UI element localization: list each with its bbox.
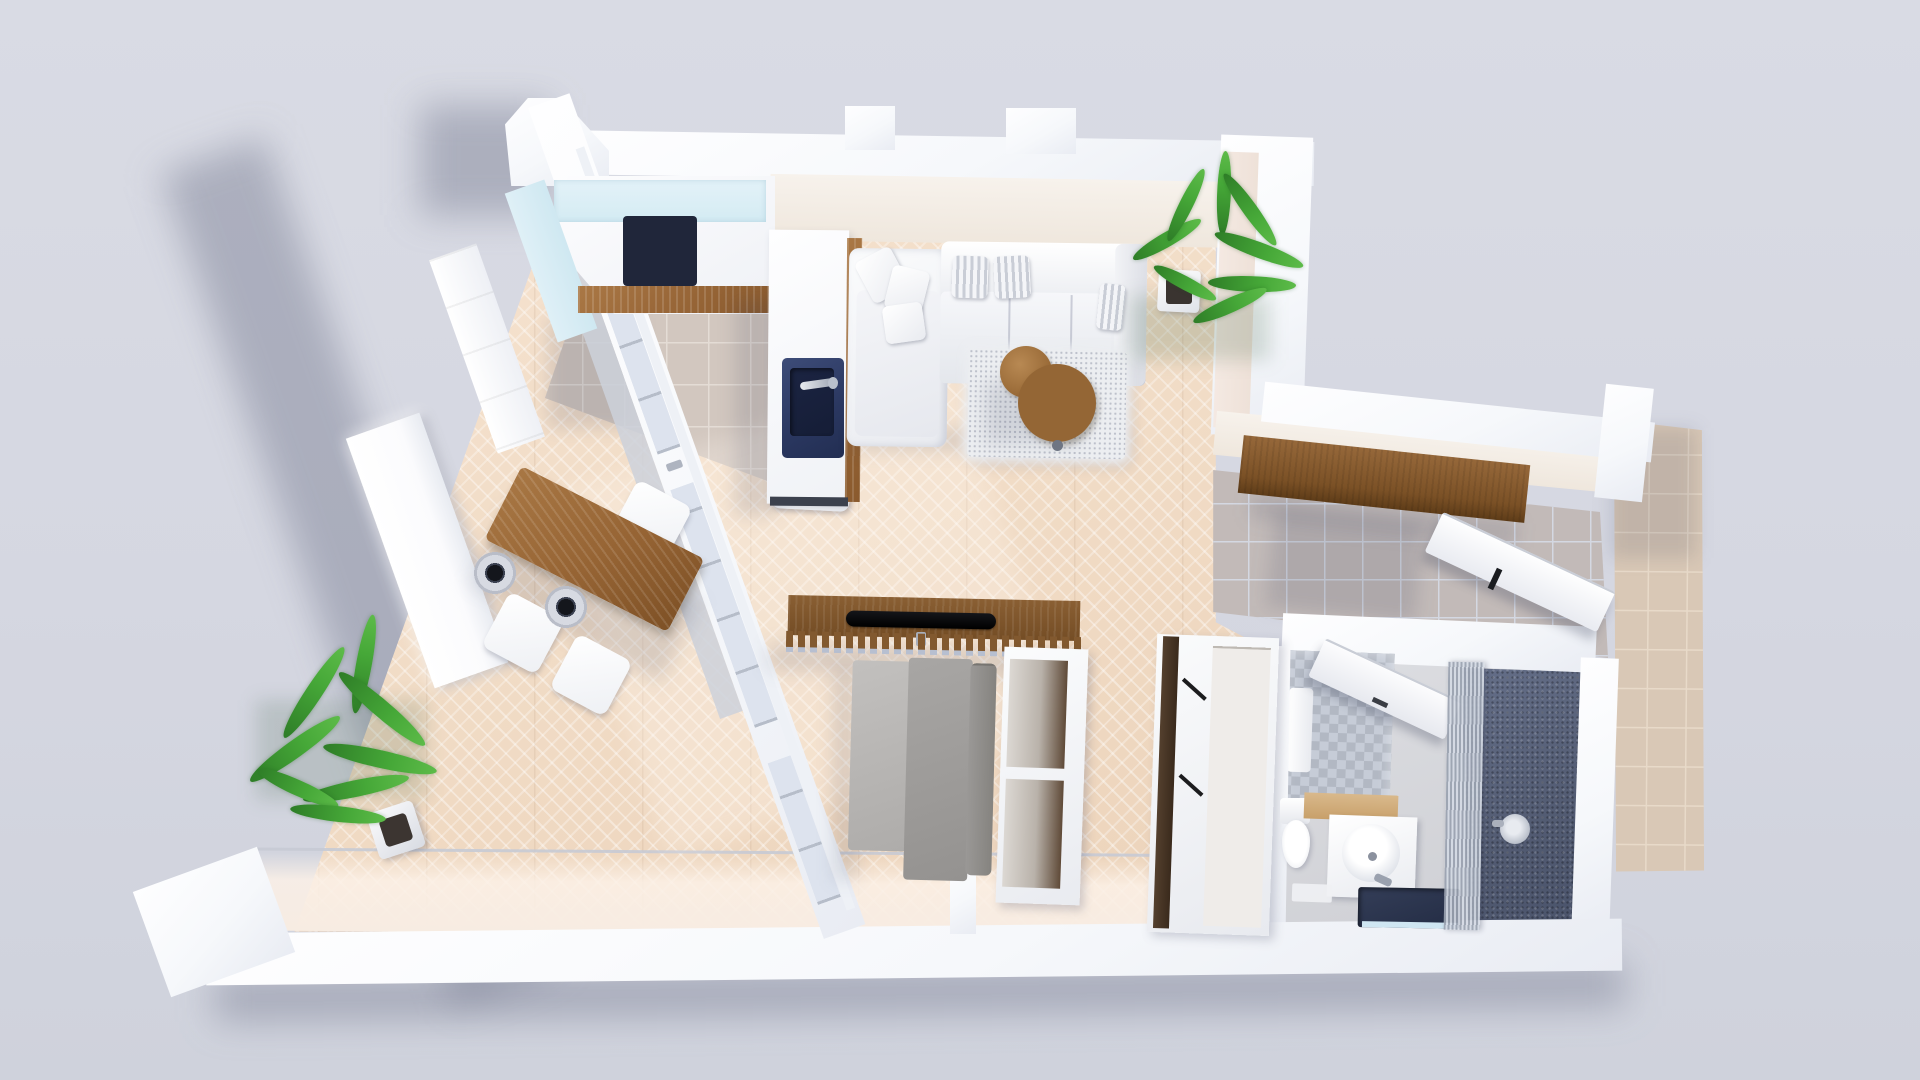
coffee-table-large — [1018, 364, 1096, 442]
wardrobe-handle-1 — [1182, 678, 1207, 701]
coffee-table-leg — [1052, 440, 1063, 451]
sofabed-mattress — [848, 660, 911, 851]
pendant-lamp-1 — [472, 550, 518, 596]
sofa-pillow-striped-1 — [951, 255, 988, 298]
shower-glass — [1444, 662, 1485, 931]
bookcase-compartment-1 — [1006, 659, 1068, 769]
wardrobe — [1147, 634, 1279, 936]
sofa-pillow-striped-2 — [993, 255, 1031, 299]
window-handle — [666, 459, 684, 472]
top-wall-bump-right — [1006, 108, 1076, 154]
top-wall-bump-left — [845, 106, 895, 150]
bath-mat — [1292, 883, 1333, 902]
bookcase-compartment-2 — [1002, 779, 1064, 889]
wardrobe-handle-2 — [1178, 774, 1203, 797]
sink-faucet-base — [828, 377, 838, 389]
sofa-pillow-3 — [882, 301, 927, 344]
cooktop — [623, 216, 697, 286]
wardrobe-open-door-edge — [1153, 636, 1179, 928]
potted-palm-bottom-left — [230, 620, 430, 840]
sofabed-body — [903, 658, 973, 882]
floor-plan-render — [0, 0, 1920, 1080]
potted-palm-top-right — [1120, 180, 1280, 340]
tv — [846, 610, 996, 629]
shower-head — [1500, 814, 1530, 844]
wardrobe-shelf-column — [1203, 646, 1271, 928]
sofa-bed — [847, 656, 999, 882]
island-bottom-lip — [770, 497, 848, 507]
shower-head-arm — [1492, 820, 1504, 827]
vanity-drain — [1368, 852, 1377, 861]
pendant-lamp-2 — [543, 584, 589, 630]
sofabed-back-cushions — [965, 663, 997, 876]
bookcase — [996, 647, 1089, 906]
towel-shelf — [1287, 688, 1314, 773]
